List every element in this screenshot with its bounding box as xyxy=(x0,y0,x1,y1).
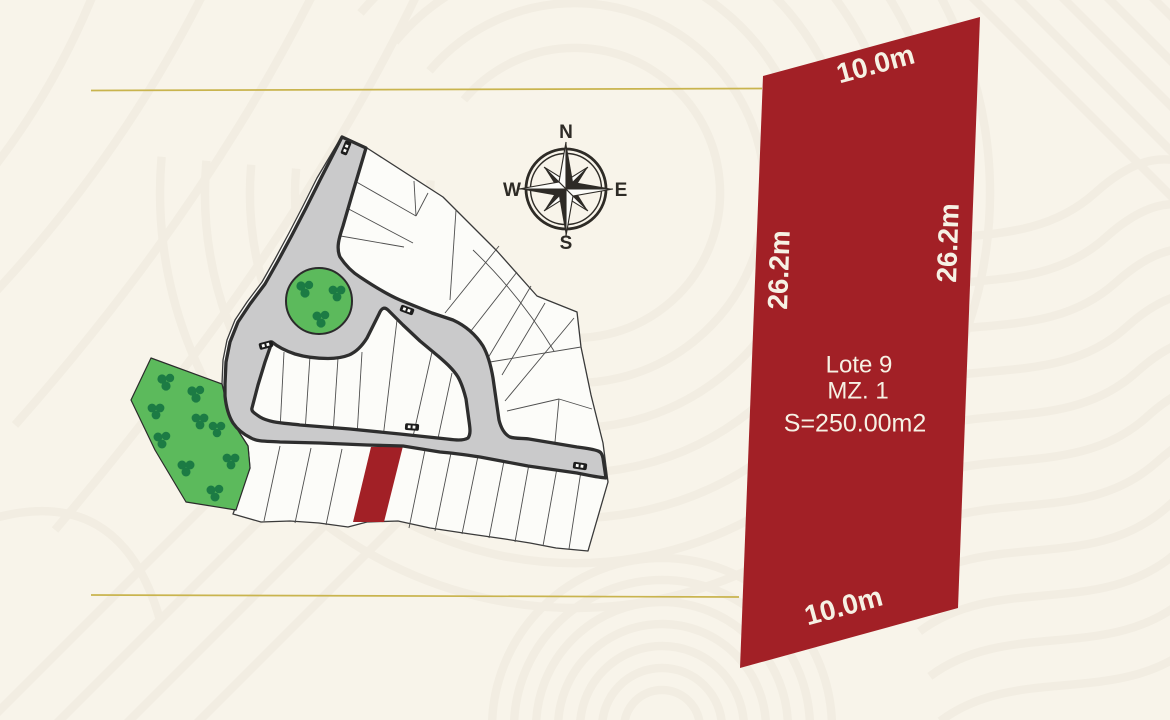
svg-text:S: S xyxy=(560,233,573,254)
svg-text:N: N xyxy=(559,122,573,143)
svg-text:E: E xyxy=(615,180,628,201)
svg-text:S=250.00m2: S=250.00m2 xyxy=(784,410,926,438)
svg-text:MZ. 1: MZ. 1 xyxy=(827,377,888,404)
svg-text:W: W xyxy=(503,180,521,201)
svg-text:26.2m: 26.2m xyxy=(931,203,965,283)
svg-text:26.2m: 26.2m xyxy=(762,230,796,310)
svg-text:Lote 9: Lote 9 xyxy=(826,351,893,378)
